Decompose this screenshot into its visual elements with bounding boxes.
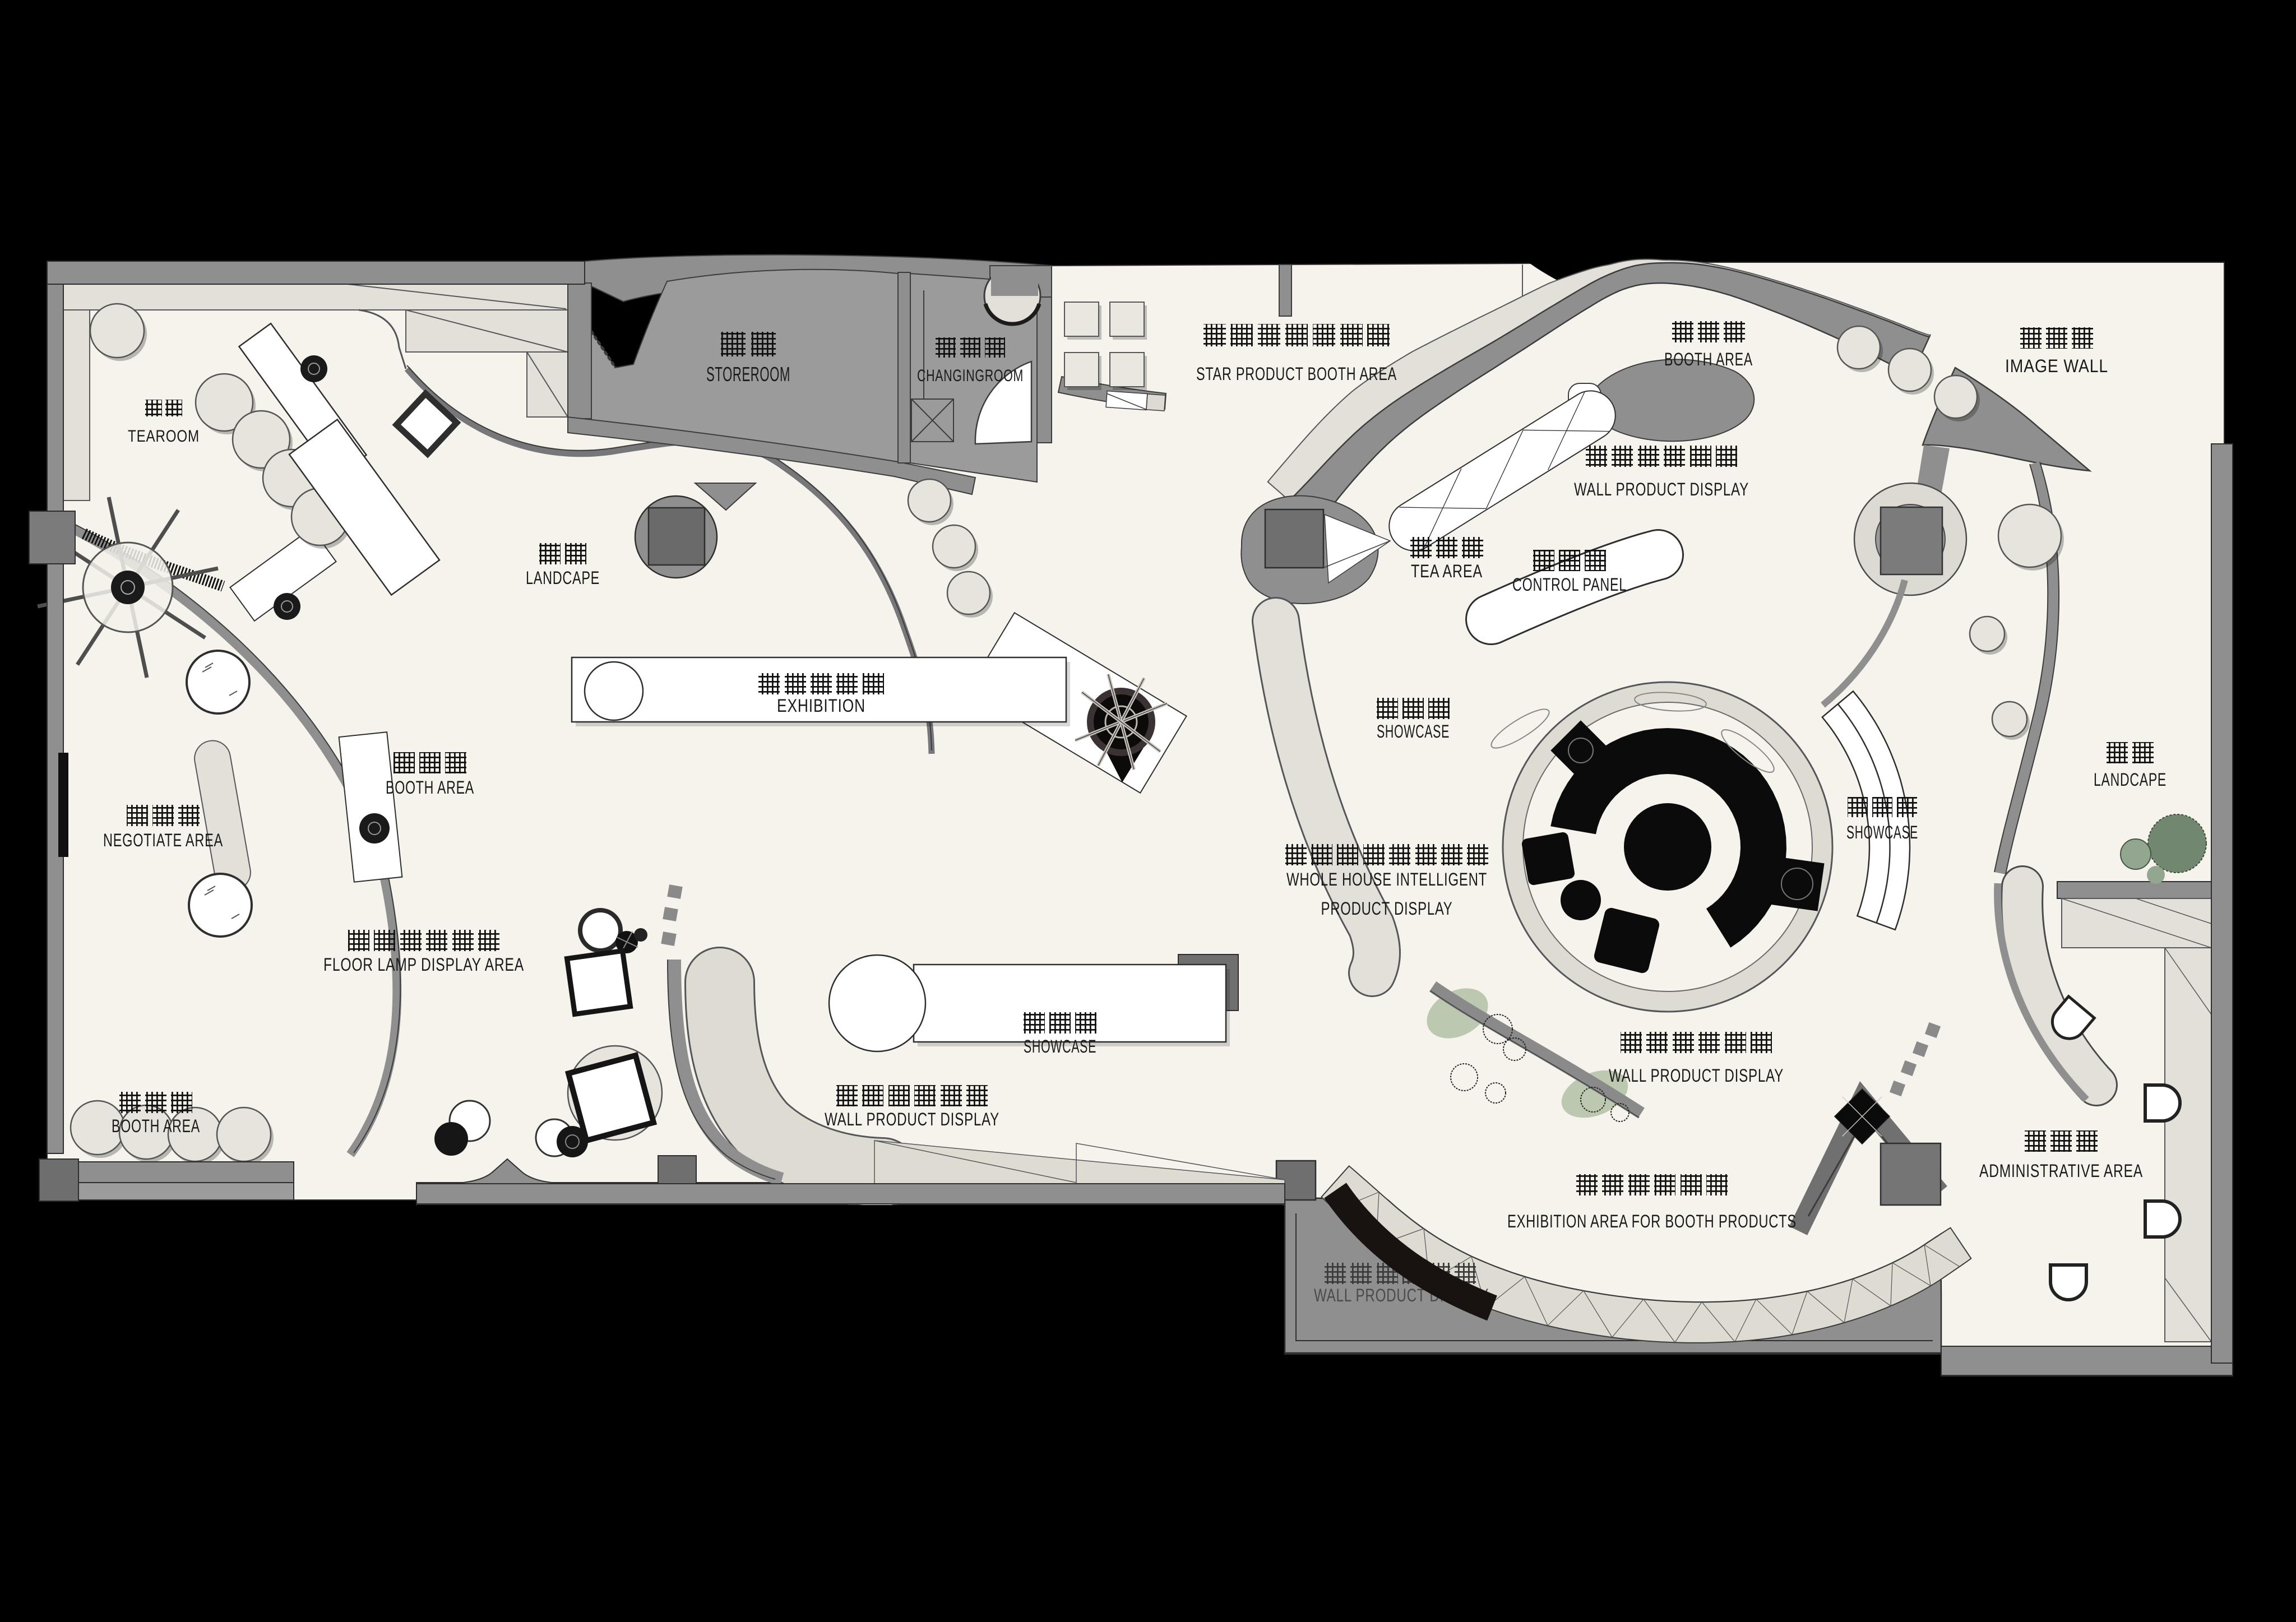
svg-text:TEAROOM: TEAROOM bbox=[128, 427, 200, 446]
svg-text:STOREROOM: STOREROOM bbox=[706, 363, 790, 386]
svg-text:LANDCAPE: LANDCAPE bbox=[526, 568, 600, 588]
svg-text:SHOWCASE: SHOWCASE bbox=[1377, 721, 1450, 742]
svg-text:EXHIBITION: EXHIBITION bbox=[777, 696, 865, 716]
svg-text:ADMINISTRATIVE AREA: ADMINISTRATIVE AREA bbox=[1979, 1161, 2143, 1181]
svg-text:BOOTH AREA: BOOTH AREA bbox=[1664, 349, 1753, 369]
svg-text:STAR PRODUCT BOOTH AREA: STAR PRODUCT BOOTH AREA bbox=[1196, 364, 1397, 384]
svg-text:SHOWCASE: SHOWCASE bbox=[1846, 822, 1918, 842]
svg-text:IMAGE WALL: IMAGE WALL bbox=[2005, 356, 2108, 376]
svg-text:TEA AREA: TEA AREA bbox=[1411, 561, 1483, 581]
svg-text:WHOLE HOUSE INTELLIGENT: WHOLE HOUSE INTELLIGENT bbox=[1286, 869, 1487, 889]
svg-text:NEGOTIATE AREA: NEGOTIATE AREA bbox=[103, 830, 223, 850]
svg-text:CHANGINGROOM: CHANGINGROOM bbox=[917, 367, 1024, 385]
svg-text:LANDCAPE: LANDCAPE bbox=[2094, 770, 2167, 790]
svg-text:WALL PRODUCT DISPLAY: WALL PRODUCT DISPLAY bbox=[825, 1109, 999, 1129]
svg-text:EXHIBITION AREA FOR BOOTH PROD: EXHIBITION AREA FOR BOOTH PRODUCTS bbox=[1507, 1211, 1797, 1231]
svg-text:BOOTH AREA: BOOTH AREA bbox=[386, 777, 474, 798]
svg-text:BOOTH AREA: BOOTH AREA bbox=[112, 1116, 200, 1136]
svg-text:SHOWCASE: SHOWCASE bbox=[1024, 1036, 1096, 1056]
svg-text:PRODUCT DISPLAY: PRODUCT DISPLAY bbox=[1321, 898, 1453, 919]
svg-text:WALL PRODUCT DISPLAY: WALL PRODUCT DISPLAY bbox=[1609, 1065, 1784, 1086]
svg-text:WALL PRODUCT DISPLAY: WALL PRODUCT DISPLAY bbox=[1574, 479, 1749, 499]
svg-text:FLOOR LAMP DISPLAY AREA: FLOOR LAMP DISPLAY AREA bbox=[323, 954, 524, 975]
svg-text:CONTROL PANEL: CONTROL PANEL bbox=[1512, 574, 1627, 595]
